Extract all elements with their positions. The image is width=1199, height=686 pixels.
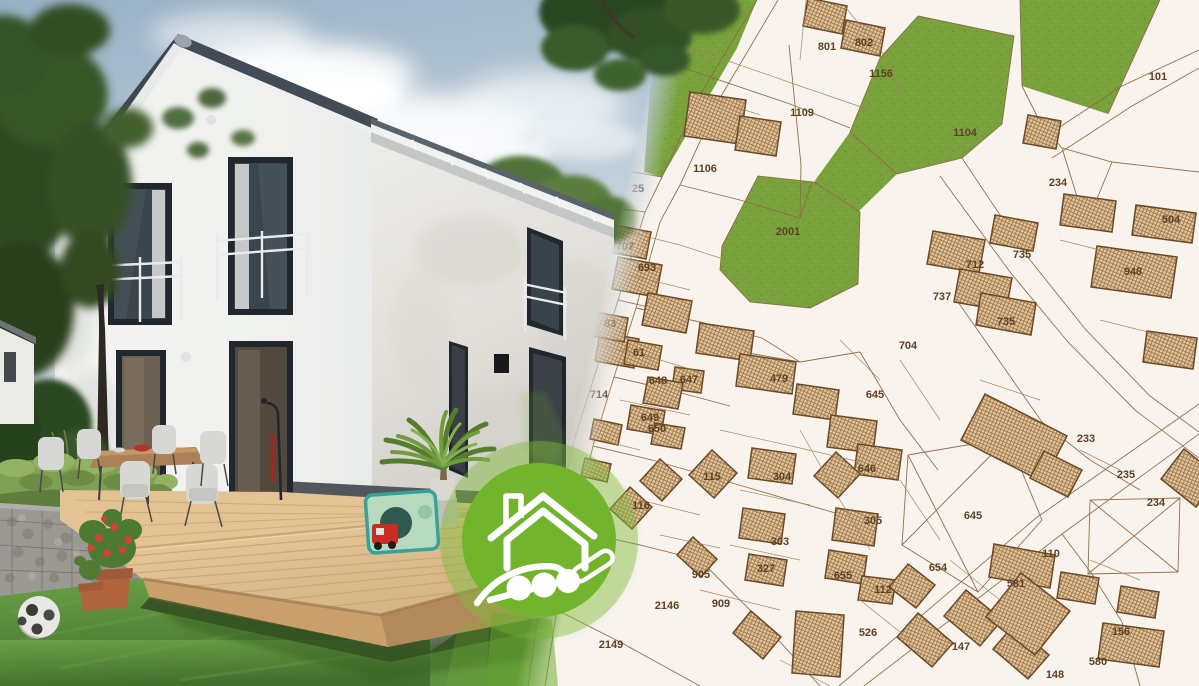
svg-text:156: 156 (1112, 626, 1130, 638)
svg-text:61: 61 (633, 347, 645, 359)
svg-text:1104: 1104 (953, 127, 978, 139)
svg-text:116: 116 (632, 500, 650, 512)
svg-text:2001: 2001 (776, 226, 800, 238)
svg-text:25: 25 (632, 183, 644, 195)
svg-text:147: 147 (952, 641, 970, 653)
svg-text:2146: 2146 (655, 600, 679, 612)
svg-text:233: 233 (1077, 433, 1095, 445)
svg-text:148: 148 (1046, 669, 1064, 681)
svg-text:714: 714 (590, 389, 609, 401)
svg-text:693: 693 (638, 262, 656, 274)
svg-text:327: 327 (757, 563, 775, 575)
svg-text:735: 735 (997, 316, 1015, 328)
svg-text:1109: 1109 (790, 107, 814, 119)
svg-text:581: 581 (1007, 578, 1025, 590)
svg-text:2149: 2149 (599, 639, 623, 651)
svg-text:235: 235 (1117, 469, 1135, 481)
svg-text:650: 650 (648, 423, 666, 435)
svg-text:655: 655 (834, 570, 852, 582)
svg-text:905: 905 (692, 569, 710, 581)
svg-text:645: 645 (866, 389, 884, 401)
svg-text:712: 712 (966, 259, 984, 271)
svg-text:909: 909 (712, 598, 730, 610)
svg-text:479: 479 (770, 373, 788, 385)
svg-text:646: 646 (858, 463, 876, 475)
svg-text:707: 707 (616, 241, 634, 253)
svg-text:802: 802 (855, 37, 873, 49)
svg-text:504: 504 (1162, 214, 1181, 226)
svg-text:83: 83 (604, 318, 616, 330)
svg-text:526: 526 (859, 627, 877, 639)
svg-text:112: 112 (874, 584, 892, 596)
svg-text:580: 580 (1089, 656, 1107, 668)
svg-text:1156: 1156 (869, 68, 893, 80)
svg-text:654: 654 (929, 562, 948, 574)
svg-text:234: 234 (1049, 177, 1068, 189)
svg-text:801: 801 (818, 41, 836, 53)
svg-text:704: 704 (899, 340, 918, 352)
svg-text:101: 101 (1149, 71, 1167, 83)
svg-text:234: 234 (1147, 497, 1166, 509)
svg-text:110: 110 (1042, 548, 1060, 560)
svg-text:303: 303 (771, 536, 789, 548)
svg-text:305: 305 (864, 515, 882, 527)
svg-text:647: 647 (680, 374, 698, 386)
svg-text:304: 304 (773, 471, 792, 483)
svg-text:948: 948 (1124, 266, 1142, 278)
svg-text:737: 737 (933, 291, 951, 303)
svg-text:645: 645 (964, 510, 982, 522)
svg-text:735: 735 (1013, 249, 1031, 261)
svg-text:648: 648 (649, 375, 667, 387)
svg-text:1106: 1106 (693, 163, 717, 175)
svg-text:115: 115 (703, 471, 721, 483)
